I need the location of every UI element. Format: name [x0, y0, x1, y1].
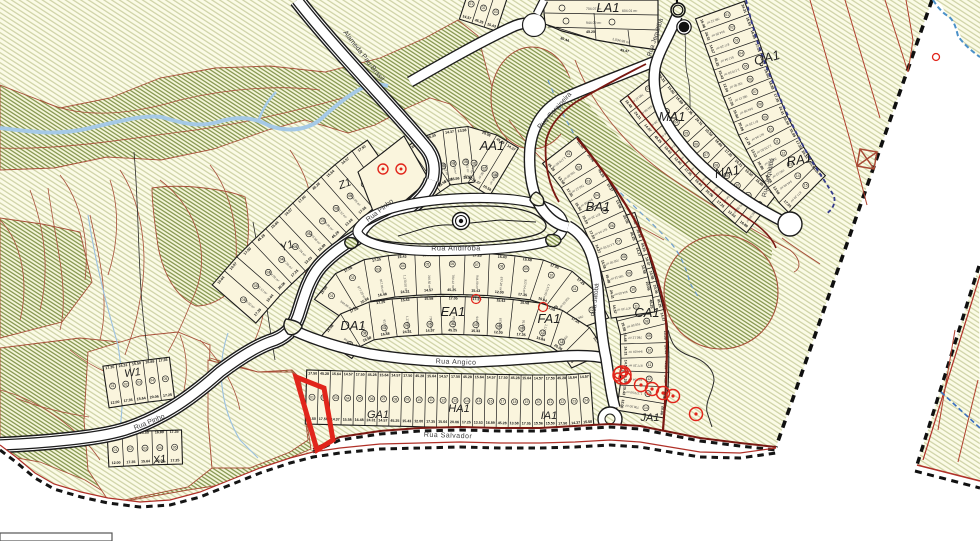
svg-text:04: 04	[150, 379, 154, 383]
svg-text:22: 22	[560, 400, 564, 404]
svg-text:15: 15	[804, 184, 808, 188]
svg-text:03: 03	[494, 10, 498, 14]
svg-text:14.57: 14.57	[487, 376, 496, 380]
svg-text:01: 01	[567, 152, 571, 156]
svg-text:15.64: 15.64	[475, 375, 484, 379]
svg-text:02: 02	[482, 6, 486, 10]
svg-text:11: 11	[648, 363, 652, 367]
svg-text:04: 04	[595, 194, 599, 198]
svg-text:07: 07	[617, 240, 621, 244]
svg-text:19: 19	[525, 400, 529, 404]
svg-text:15.64: 15.64	[141, 459, 150, 463]
svg-text:17.50: 17.50	[356, 373, 365, 377]
svg-text:700.50 m²: 700.50 m²	[429, 316, 433, 330]
svg-text:45.25: 45.25	[586, 30, 595, 34]
svg-text:07: 07	[475, 263, 479, 267]
svg-text:Rua Angico: Rua Angico	[436, 358, 477, 366]
svg-text:01: 01	[310, 395, 314, 399]
svg-text:944.09 m²: 944.09 m²	[475, 275, 479, 289]
svg-text:10: 10	[769, 127, 773, 131]
svg-text:15.56: 15.56	[534, 422, 543, 426]
svg-text:15.64: 15.64	[568, 375, 577, 380]
svg-text:09: 09	[405, 398, 409, 402]
svg-text:20: 20	[537, 400, 541, 404]
svg-text:02: 02	[128, 447, 132, 451]
svg-text:45.25: 45.25	[390, 419, 399, 423]
svg-text:14.57: 14.57	[439, 375, 448, 379]
svg-text:700.50 m²: 700.50 m²	[427, 275, 431, 289]
svg-text:06: 06	[694, 142, 698, 146]
svg-text:02: 02	[577, 165, 581, 169]
svg-text:01: 01	[725, 13, 729, 17]
svg-text:01: 01	[469, 2, 473, 6]
svg-text:15.64: 15.64	[332, 372, 341, 376]
svg-text:15.58: 15.58	[583, 420, 592, 425]
svg-text:15.43: 15.43	[498, 255, 507, 260]
svg-text:09: 09	[524, 267, 528, 271]
svg-text:08: 08	[500, 265, 504, 269]
svg-text:01: 01	[114, 448, 118, 452]
svg-text:GA1: GA1	[367, 409, 389, 421]
svg-text:12.00: 12.00	[112, 461, 121, 465]
svg-text:16.48: 16.48	[355, 418, 364, 422]
svg-text:09: 09	[627, 271, 631, 275]
svg-text:15.58: 15.58	[424, 297, 433, 301]
svg-text:15.58: 15.58	[343, 418, 352, 422]
svg-text:17.35: 17.35	[126, 460, 135, 464]
svg-text:45.28: 45.28	[498, 421, 507, 425]
svg-text:02: 02	[124, 382, 128, 386]
svg-text:05: 05	[173, 445, 177, 449]
svg-text:04: 04	[158, 446, 162, 450]
svg-text:15.43: 15.43	[397, 254, 406, 259]
svg-text:16.89: 16.89	[155, 430, 164, 434]
svg-text:HA1: HA1	[448, 403, 469, 415]
svg-text:10: 10	[417, 398, 421, 402]
svg-text:06: 06	[370, 397, 374, 401]
svg-text:EA1: EA1	[441, 304, 466, 319]
svg-text:03: 03	[334, 396, 338, 400]
svg-text:16.89: 16.89	[486, 421, 495, 425]
svg-text:17.50: 17.50	[403, 374, 412, 378]
svg-text:13.58: 13.58	[510, 421, 519, 425]
svg-text:04: 04	[346, 396, 350, 400]
svg-text:15.64: 15.64	[522, 376, 531, 380]
svg-text:12.00: 12.00	[414, 419, 423, 423]
svg-text:15.64: 15.64	[438, 420, 447, 424]
svg-text:05: 05	[426, 263, 430, 267]
svg-text:45.25: 45.25	[447, 288, 456, 292]
svg-text:944.09 m²: 944.09 m²	[475, 316, 479, 330]
svg-text:780.12 m²: 780.12 m²	[451, 275, 455, 289]
svg-text:877.20 m²: 877.20 m²	[629, 363, 643, 367]
svg-text:15.43: 15.43	[401, 298, 410, 303]
svg-text:01: 01	[330, 294, 334, 298]
svg-text:17.25: 17.25	[462, 420, 471, 424]
svg-text:17.05: 17.05	[522, 422, 531, 426]
svg-text:05: 05	[744, 65, 748, 69]
svg-text:14.57: 14.57	[391, 373, 400, 377]
svg-text:15.43: 15.43	[471, 289, 480, 293]
svg-text:17.50: 17.50	[308, 371, 317, 375]
svg-text:BA1: BA1	[586, 199, 611, 214]
svg-text:45.28: 45.28	[415, 374, 424, 378]
svg-text:17.35: 17.35	[170, 430, 179, 434]
svg-text:DA1: DA1	[340, 318, 365, 333]
svg-text:21: 21	[548, 400, 552, 404]
svg-text:11: 11	[573, 287, 577, 291]
svg-text:FA1: FA1	[538, 311, 561, 326]
svg-text:05: 05	[164, 377, 168, 381]
svg-text:08: 08	[394, 397, 398, 401]
svg-text:08: 08	[758, 103, 762, 107]
svg-text:MA1: MA1	[659, 109, 686, 124]
svg-text:14.57: 14.57	[580, 374, 589, 379]
svg-text:45.28: 45.28	[368, 373, 377, 377]
svg-text:15.64: 15.64	[379, 373, 388, 377]
svg-text:17.50: 17.50	[451, 375, 460, 379]
svg-text:12: 12	[647, 377, 651, 381]
svg-text:01: 01	[111, 384, 115, 388]
svg-text:18: 18	[513, 400, 517, 404]
svg-text:780.12 m²: 780.12 m²	[628, 335, 642, 340]
svg-text:45.28: 45.28	[320, 372, 329, 376]
svg-text:604.01 m²: 604.01 m²	[622, 9, 638, 13]
svg-text:17.50: 17.50	[558, 421, 567, 425]
svg-text:14.57: 14.57	[424, 288, 433, 292]
svg-text:03: 03	[143, 446, 147, 450]
svg-text:03: 03	[137, 380, 141, 384]
svg-text:05: 05	[684, 131, 688, 135]
svg-text:14.37: 14.37	[571, 421, 580, 426]
svg-text:09: 09	[763, 115, 767, 119]
svg-text:16: 16	[489, 400, 493, 404]
svg-text:06: 06	[748, 77, 752, 81]
svg-text:W1: W1	[124, 366, 142, 380]
svg-text:07: 07	[704, 153, 708, 157]
svg-text:14: 14	[796, 174, 800, 178]
svg-text:04: 04	[739, 52, 743, 56]
svg-text:45.28: 45.28	[463, 375, 472, 379]
svg-text:10: 10	[549, 273, 553, 277]
svg-text:10: 10	[631, 288, 635, 292]
svg-text:944.09 m²: 944.09 m²	[586, 21, 602, 25]
svg-text:03: 03	[735, 39, 739, 43]
svg-text:07: 07	[753, 90, 757, 94]
svg-text:17.50: 17.50	[499, 376, 508, 380]
svg-text:10: 10	[648, 348, 652, 352]
svg-text:24: 24	[584, 399, 588, 403]
svg-text:944.09 m²: 944.09 m²	[629, 349, 643, 353]
svg-text:17.50: 17.50	[319, 417, 328, 421]
svg-text:15.43: 15.43	[496, 298, 505, 303]
svg-text:05: 05	[358, 397, 362, 401]
svg-text:17.25: 17.25	[170, 458, 179, 462]
svg-text:14.57: 14.57	[344, 372, 353, 376]
svg-text:17.50: 17.50	[546, 376, 555, 380]
svg-text:IA1: IA1	[541, 410, 558, 422]
svg-text:17.05: 17.05	[449, 296, 458, 300]
svg-text:14.57: 14.57	[534, 376, 543, 380]
svg-text:15.64: 15.64	[427, 374, 436, 378]
svg-text:15.43: 15.43	[402, 419, 411, 423]
svg-text:45.28: 45.28	[511, 376, 520, 380]
svg-text:15.50: 15.50	[546, 422, 555, 426]
svg-text:12: 12	[441, 399, 445, 403]
svg-text:09: 09	[647, 334, 651, 338]
svg-text:14: 14	[644, 406, 648, 410]
svg-text:15: 15	[477, 399, 481, 403]
svg-text:LA1: LA1	[596, 0, 619, 15]
svg-text:23: 23	[572, 400, 576, 404]
svg-text:AA1: AA1	[479, 138, 505, 153]
svg-text:03: 03	[376, 267, 380, 271]
svg-text:02: 02	[730, 26, 734, 30]
svg-text:06: 06	[450, 262, 454, 266]
svg-text:13.53: 13.53	[474, 421, 483, 425]
svg-text:X1: X1	[151, 453, 167, 467]
svg-text:04: 04	[401, 264, 405, 268]
svg-text:24.31: 24.31	[623, 346, 627, 355]
svg-text:08: 08	[622, 255, 626, 259]
svg-text:45.28: 45.28	[557, 376, 566, 380]
svg-text:07: 07	[382, 397, 386, 401]
svg-text:Rua Andiroba: Rua Andiroba	[431, 244, 481, 253]
svg-text:16.48: 16.48	[623, 332, 627, 341]
svg-text:03: 03	[586, 179, 590, 183]
svg-text:06: 06	[610, 224, 614, 228]
svg-text:CA1: CA1	[634, 305, 659, 320]
svg-text:20.06: 20.06	[450, 420, 459, 424]
svg-text:17.35: 17.35	[426, 420, 435, 424]
svg-text:JA1: JA1	[640, 412, 660, 424]
svg-text:11: 11	[429, 398, 433, 402]
svg-text:11: 11	[775, 139, 779, 143]
svg-text:02: 02	[351, 276, 355, 280]
svg-text:17: 17	[501, 400, 505, 404]
